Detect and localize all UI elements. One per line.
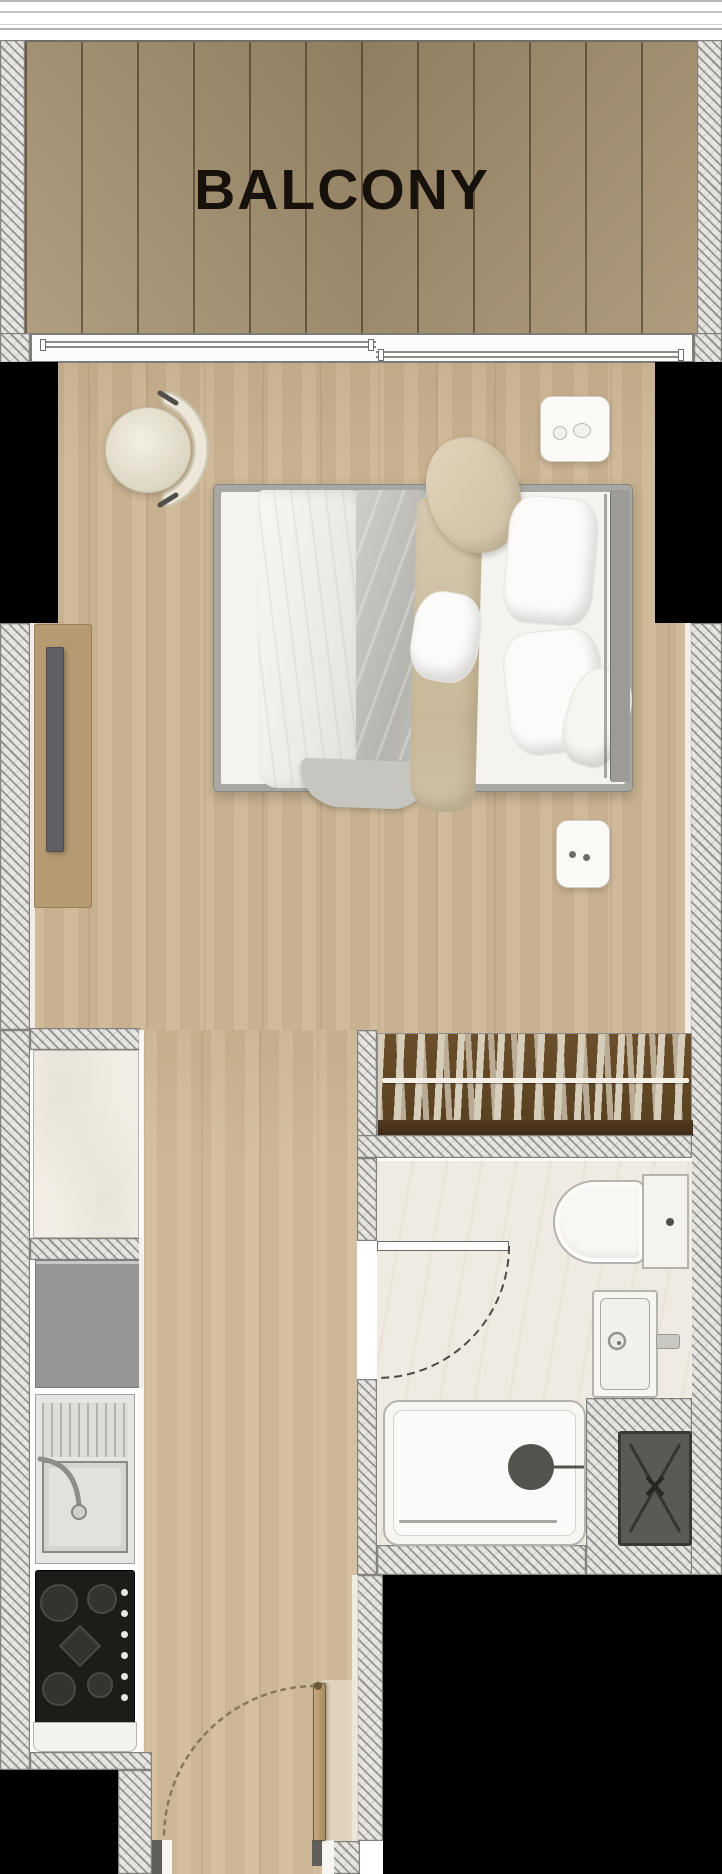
nightstand-top	[540, 396, 610, 462]
stove-knob-icon	[121, 1610, 128, 1617]
stove-knob-icon	[121, 1631, 128, 1638]
void-bottom-right	[383, 1575, 722, 1874]
sliding-door-handle-icon	[40, 339, 46, 351]
wall-band-left	[0, 333, 30, 363]
entry-door-jamb	[322, 1840, 334, 1874]
wardrobe-front-edge	[378, 1120, 693, 1136]
wall-tv	[46, 647, 64, 852]
entry-door-stop	[312, 1840, 322, 1866]
kitchen-base-cabinet	[33, 1722, 137, 1752]
stove-burner	[87, 1672, 113, 1698]
toilet-tank	[642, 1174, 689, 1269]
wall-bath-left-upper	[357, 1158, 377, 1241]
balcony-railing	[0, 0, 722, 40]
round-armchair	[105, 407, 191, 493]
shower-mat	[618, 1431, 692, 1546]
decor-cup-icon	[573, 423, 591, 438]
decor-cup-icon	[553, 426, 567, 440]
balcony-label: BALCONY	[25, 162, 659, 219]
bathtub	[383, 1400, 586, 1546]
balcony-sliding-door	[30, 333, 694, 363]
stove-knob-icon	[121, 1652, 128, 1659]
wall-under-bathtub	[377, 1545, 586, 1575]
stove-burner	[87, 1584, 117, 1614]
bathroom-door-leaf	[377, 1241, 509, 1251]
stove-burner	[40, 1584, 78, 1622]
stove-burner	[42, 1672, 76, 1706]
void-top-right	[655, 362, 722, 623]
wall-under-wardrobe	[357, 1135, 692, 1158]
nightstand-bottom	[556, 820, 610, 888]
wall-left-low	[0, 1030, 30, 1770]
headboard-line	[604, 494, 607, 778]
wall-kitchen-cap-mid	[30, 1238, 142, 1260]
sliding-door-track-right	[376, 351, 682, 358]
toilet-flush-icon	[666, 1218, 674, 1226]
entry-door-recess	[322, 1680, 357, 1841]
sink-basin-inner	[49, 1468, 121, 1546]
stove-burner	[59, 1625, 101, 1667]
sliding-door-handle-icon	[378, 349, 384, 361]
sink-basin	[42, 1461, 128, 1553]
knob-icon	[583, 854, 590, 861]
wall-right	[690, 623, 722, 1575]
wall-kitchen-cap-top	[30, 1028, 140, 1050]
entry-door-leaf	[313, 1683, 326, 1841]
kitchen-counter	[33, 1050, 139, 1238]
refrigerator	[35, 1260, 143, 1388]
sink-faucet-icon	[656, 1334, 680, 1349]
wall-entry-left	[118, 1770, 152, 1874]
sliding-door-handle-icon	[678, 349, 684, 361]
entry-door-stop	[152, 1840, 162, 1874]
bathtub-edge-line	[399, 1520, 557, 1523]
wall-balcony-left	[0, 40, 25, 335]
wardrobe-closet	[377, 1033, 692, 1135]
sink-drainboard	[42, 1403, 128, 1457]
kitchen-front-edge	[139, 1030, 144, 1752]
wardrobe-rail	[382, 1078, 689, 1083]
void-top-left	[0, 362, 58, 623]
stove-knob-icon	[121, 1589, 128, 1596]
void-bottom-left	[0, 1770, 118, 1874]
wall-left-mid	[0, 623, 30, 1030]
sliding-door-track-left	[46, 341, 376, 348]
duvet-white	[258, 490, 370, 788]
bathtub-inner	[393, 1410, 576, 1536]
bathroom-sink-basin	[600, 1298, 650, 1390]
wall-entry-right	[330, 1841, 360, 1874]
gas-stove	[35, 1570, 135, 1724]
toilet-bowl	[553, 1180, 645, 1264]
stove-knob-icon	[121, 1694, 128, 1701]
knob-icon	[569, 851, 576, 858]
wall-kitchen-cap-bottom	[30, 1752, 152, 1770]
bathroom-sink	[592, 1290, 658, 1398]
entry-door-jamb	[162, 1840, 172, 1874]
wall-balcony-right	[697, 40, 722, 335]
stove-knob-icon	[121, 1673, 128, 1680]
bed-pillow	[501, 493, 602, 628]
sliding-door-handle-icon	[368, 339, 374, 351]
bed-headboard	[610, 490, 630, 782]
wall-bath-left-lower	[357, 1379, 377, 1575]
floor-plan: BALCONY	[0, 0, 722, 1874]
wall-band-right	[694, 333, 722, 363]
kitchen-sink-unit	[35, 1394, 135, 1564]
wall-corridor-right	[357, 1575, 383, 1841]
